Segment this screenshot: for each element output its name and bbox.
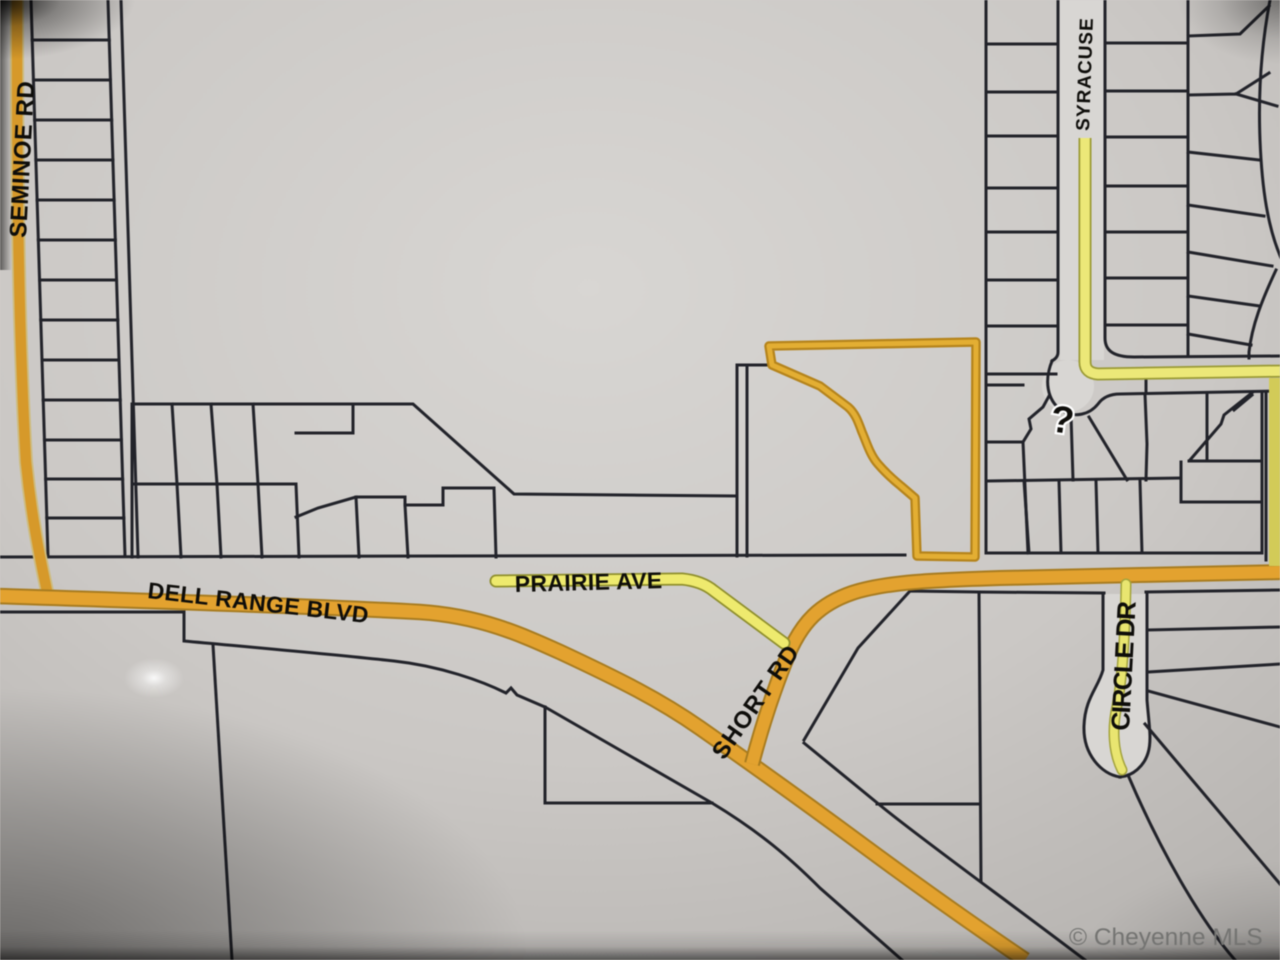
svg-text:PRAIRIE AVE: PRAIRIE AVE [514,567,662,597]
svg-text:© Cheyenne MLS: © Cheyenne MLS [1069,924,1263,951]
